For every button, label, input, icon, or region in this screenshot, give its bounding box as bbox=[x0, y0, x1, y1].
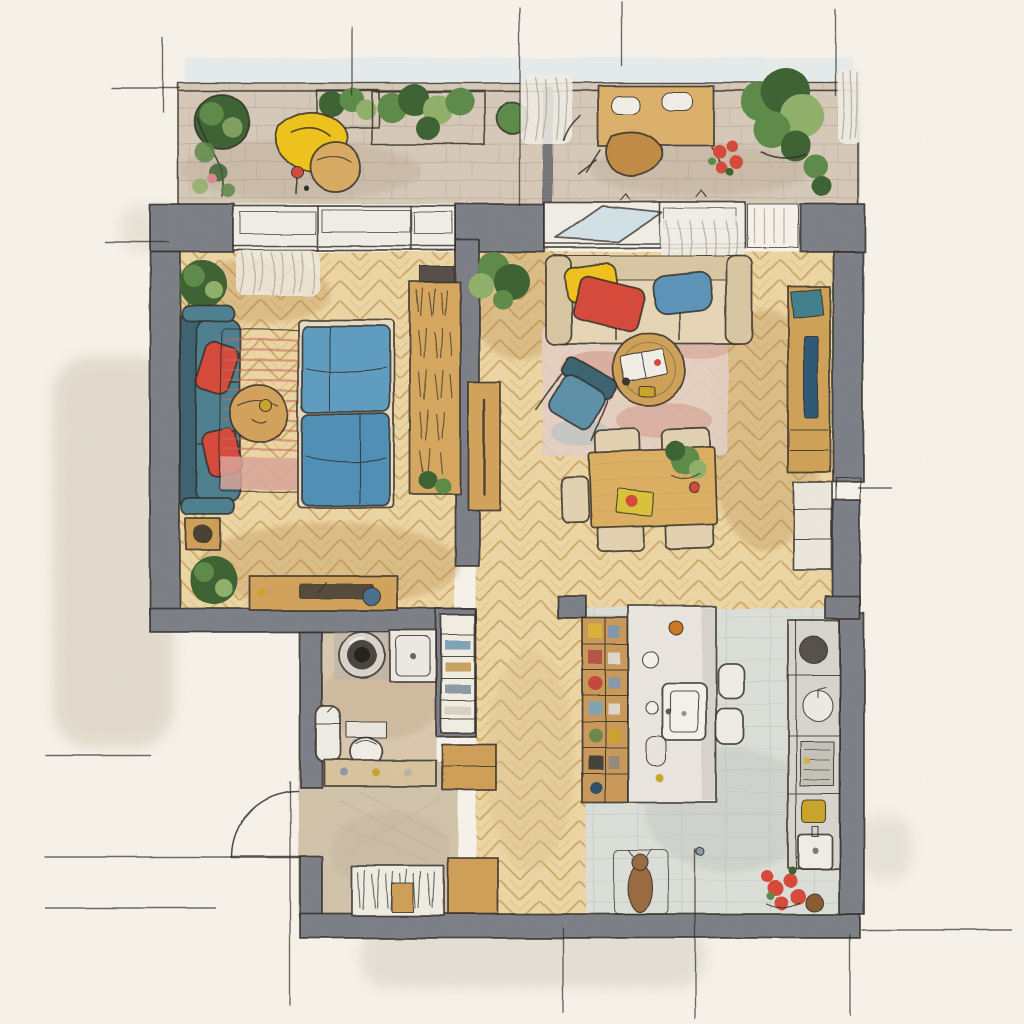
floor-plan-canvas bbox=[0, 0, 1024, 1024]
paper-grain-overlay bbox=[0, 0, 1024, 1024]
